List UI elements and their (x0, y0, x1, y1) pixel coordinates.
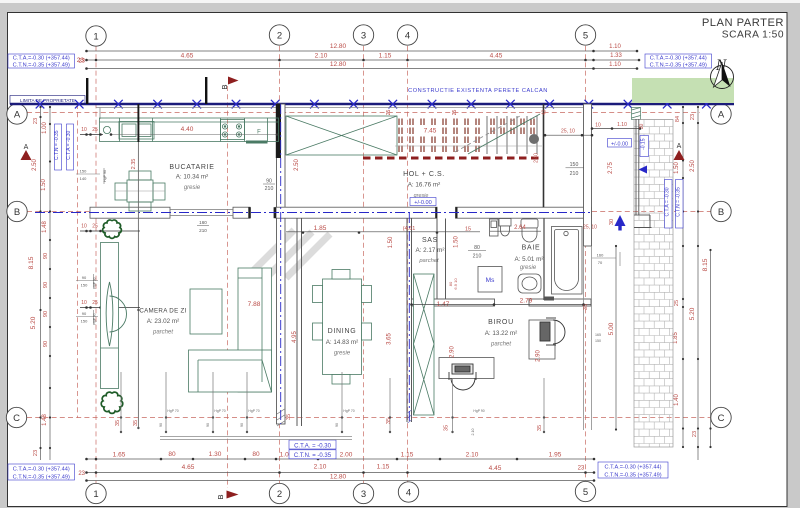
svg-text:80: 80 (474, 245, 480, 251)
svg-text:10: 10 (595, 123, 601, 129)
svg-text:B: B (216, 494, 225, 499)
svg-text:8.15: 8.15 (28, 256, 35, 269)
svg-text:A: 5.01 m²: A: 5.01 m² (514, 256, 543, 263)
svg-text:+/-0.00: +/-0.00 (414, 200, 432, 206)
svg-text:1: 1 (93, 31, 98, 42)
svg-text:A: 2.17 m²: A: 2.17 m² (415, 247, 444, 254)
svg-text:+/-0.00: +/-0.00 (611, 141, 628, 147)
svg-text:SCARA 1:50: SCARA 1:50 (722, 30, 784, 41)
svg-text:4.95: 4.95 (292, 331, 298, 343)
svg-text:HgP 70: HgP 70 (248, 409, 259, 413)
svg-text:90: 90 (43, 253, 49, 259)
svg-text:210: 210 (570, 171, 579, 177)
svg-text:80: 80 (168, 451, 176, 458)
svg-text:25: 25 (386, 110, 392, 116)
svg-text:2.64: 2.64 (514, 225, 526, 231)
svg-text:A: 16.76 m²: A: 16.76 m² (408, 182, 441, 189)
svg-text:35: 35 (537, 425, 543, 431)
svg-text:C.T.A.=-0.30 (+357.44): C.T.A.=-0.30 (+357.44) (650, 55, 707, 61)
svg-text:25: 25 (92, 300, 98, 306)
svg-text:1.30: 1.30 (209, 451, 222, 458)
svg-text:10: 10 (81, 127, 87, 133)
svg-text:90: 90 (335, 423, 339, 427)
svg-text:150: 150 (595, 339, 601, 343)
svg-text:90: 90 (43, 282, 49, 288)
svg-text:1.15: 1.15 (401, 452, 414, 459)
svg-text:2.50: 2.50 (32, 159, 38, 171)
svg-text:5: 5 (583, 30, 588, 41)
svg-text:210: 210 (473, 254, 482, 260)
svg-text:90: 90 (43, 311, 49, 317)
svg-text:1.50: 1.50 (674, 162, 680, 174)
svg-text:8.15: 8.15 (702, 258, 709, 271)
svg-text:C: C (718, 413, 725, 424)
svg-text:A: A (677, 143, 682, 150)
svg-text:A: 13.22 m²: A: 13.22 m² (485, 330, 518, 337)
svg-text:210: 210 (199, 228, 207, 233)
svg-text:7.45: 7.45 (424, 128, 437, 135)
svg-text:A: A (718, 109, 725, 120)
svg-text:B: B (718, 207, 724, 218)
svg-text:2.10: 2.10 (315, 53, 328, 60)
svg-text:5.20: 5.20 (689, 307, 696, 320)
svg-text:4: 4 (406, 487, 411, 498)
svg-text:2.79: 2.79 (520, 298, 533, 305)
svg-text:4.65: 4.65 (182, 464, 195, 471)
svg-text:A: 23.02 m²: A: 23.02 m² (147, 318, 180, 325)
svg-text:1.10: 1.10 (609, 62, 621, 68)
svg-text:1.15: 1.15 (379, 53, 392, 60)
svg-text:23: 23 (33, 450, 39, 456)
svg-text:1.65: 1.65 (113, 452, 126, 459)
svg-text:90: 90 (82, 311, 87, 316)
svg-text:80: 80 (448, 281, 453, 286)
svg-text:160: 160 (597, 253, 604, 258)
svg-text:C.T.N = -0.35: C.T.N = -0.35 (54, 130, 60, 160)
svg-text:90: 90 (240, 423, 244, 427)
svg-text:BAIE: BAIE (522, 245, 541, 252)
svg-text:2.75: 2.75 (608, 162, 614, 174)
svg-text:-0.15: -0.15 (640, 138, 646, 150)
svg-text:2.35: 2.35 (131, 159, 137, 170)
svg-text:1.00: 1.00 (42, 122, 48, 134)
svg-text:2.90: 2.90 (536, 350, 542, 362)
svg-text:C: C (13, 413, 20, 424)
svg-text:25, 10: 25, 10 (561, 129, 575, 135)
svg-text:C.T.A.=-0.30 (+357.44): C.T.A.=-0.30 (+357.44) (605, 464, 662, 470)
svg-text:C.T.A.=-0.30 (+357.44): C.T.A.=-0.30 (+357.44) (13, 466, 70, 472)
svg-text:90: 90 (266, 179, 272, 185)
svg-text:80: 80 (252, 451, 260, 458)
svg-text:HgP 70: HgP 70 (214, 409, 225, 413)
svg-text:150: 150 (81, 319, 88, 324)
svg-text:1.10: 1.10 (609, 44, 621, 50)
svg-text:5: 5 (583, 487, 588, 498)
svg-text:C.T.N. = -0.35: C.T.N. = -0.35 (294, 453, 332, 459)
svg-text:35: 35 (286, 414, 292, 420)
svg-text:23: 23 (77, 57, 85, 64)
svg-text:12.80: 12.80 (330, 61, 347, 68)
svg-text:25: 25 (92, 224, 98, 230)
svg-text:25: 25 (452, 110, 458, 116)
svg-text:12.80: 12.80 (330, 43, 347, 50)
svg-text:2.90: 2.90 (450, 346, 456, 358)
svg-text:5.20: 5.20 (30, 316, 37, 329)
svg-text:2: 2 (277, 30, 282, 41)
svg-text:1.95: 1.95 (549, 452, 562, 459)
svg-text:10: 10 (81, 300, 87, 306)
svg-text:1.48: 1.48 (42, 414, 48, 426)
svg-text:gresie: gresie (334, 351, 351, 357)
svg-text:SAS: SAS (422, 237, 438, 244)
svg-text:30: 30 (609, 219, 615, 225)
svg-text:A: A (24, 144, 29, 151)
svg-text:C.T.A.=-0.30 (+357.44): C.T.A.=-0.30 (+357.44) (13, 55, 70, 61)
svg-text:Ms: Ms (486, 277, 495, 284)
svg-text:1.85: 1.85 (673, 332, 679, 344)
svg-text:210: 210 (265, 186, 274, 192)
svg-text:1.15: 1.15 (377, 464, 390, 471)
svg-text:23: 23 (78, 471, 85, 477)
svg-text:HOL + C.S.: HOL + C.S. (403, 171, 445, 178)
svg-text:1.50: 1.50 (388, 236, 394, 248)
svg-text:35: 35 (386, 418, 392, 424)
svg-text:6.9 10: 6.9 10 (453, 278, 458, 290)
svg-text:1.40: 1.40 (674, 394, 680, 406)
svg-text:2.10: 2.10 (314, 464, 327, 471)
svg-text:2.10: 2.10 (466, 452, 479, 459)
svg-text:HgP 90: HgP 90 (93, 313, 97, 324)
svg-text:25: 25 (674, 300, 680, 306)
svg-text:23: 23 (33, 118, 39, 124)
svg-text:B: B (220, 84, 229, 89)
svg-text:4: 4 (405, 30, 410, 41)
svg-text:30: 30 (639, 124, 645, 130)
svg-text:1.50: 1.50 (454, 236, 460, 248)
svg-text:PLAN PARTER: PLAN PARTER (702, 17, 784, 29)
svg-text:35: 35 (444, 425, 450, 431)
svg-text:35: 35 (133, 420, 139, 426)
svg-text:C.T.A = -0.30: C.T.A = -0.30 (66, 130, 72, 159)
svg-text:C.T.N.=-0.35 (+357.49): C.T.N.=-0.35 (+357.49) (13, 62, 70, 68)
svg-text:150: 150 (81, 283, 88, 288)
svg-text:2: 2 (277, 489, 282, 500)
svg-text:160: 160 (199, 220, 207, 225)
svg-text:2.10: 2.10 (471, 429, 475, 436)
svg-text:25, 10: 25, 10 (583, 225, 597, 231)
svg-text:1.48: 1.48 (42, 221, 48, 233)
svg-text:10: 10 (81, 224, 87, 230)
svg-text:25: 25 (92, 127, 98, 133)
svg-text:gresie: gresie (520, 265, 537, 271)
svg-text:HgP 90: HgP 90 (103, 170, 107, 182)
svg-text:1.33: 1.33 (610, 53, 622, 59)
svg-text:(4.61: (4.61 (403, 226, 416, 232)
svg-text:C.T.A = -0.30: C.T.A = -0.30 (664, 187, 670, 216)
svg-text:12.80: 12.80 (330, 474, 347, 481)
svg-text:BIROU: BIROU (488, 319, 514, 326)
svg-text:23: 23 (690, 114, 696, 120)
svg-text:35: 35 (583, 304, 589, 310)
svg-text:1.85: 1.85 (314, 225, 327, 232)
svg-text:B: B (14, 207, 20, 218)
svg-text:15: 15 (465, 227, 471, 233)
svg-text:35: 35 (115, 420, 121, 426)
svg-text:HgP 70: HgP 70 (343, 409, 354, 413)
svg-text:HgP 90: HgP 90 (93, 277, 97, 288)
svg-text:90: 90 (43, 341, 49, 347)
svg-text:3: 3 (361, 489, 366, 500)
svg-text:1: 1 (93, 489, 98, 500)
svg-text:CONSTRUCTIE EXISTENTA PERETE C: CONSTRUCTIE EXISTENTA PERETE CALCAN (408, 88, 548, 94)
svg-text:3: 3 (361, 30, 366, 41)
svg-text:parchet: parchet (490, 342, 511, 348)
svg-text:DINING: DINING (328, 328, 357, 335)
svg-text:C.T.N.=-0.35 (+357.49): C.T.N.=-0.35 (+357.49) (13, 474, 70, 480)
svg-text:140: 140 (80, 176, 87, 181)
svg-text:BUCATARIE: BUCATARIE (169, 164, 214, 171)
svg-text:90: 90 (206, 423, 210, 427)
svg-text:70: 70 (598, 260, 603, 265)
svg-text:84: 84 (675, 116, 681, 122)
svg-text:C.T.N.=-0.35 (+357.49): C.T.N.=-0.35 (+357.49) (650, 62, 707, 68)
svg-text:2.40: 2.40 (534, 153, 540, 163)
svg-text:parchet: parchet (418, 258, 439, 264)
svg-text:4.40: 4.40 (181, 126, 194, 133)
svg-text:CAMERA DE ZI: CAMERA DE ZI (139, 308, 186, 315)
svg-text:LIMITA DE PROPRIETATE: LIMITA DE PROPRIETATE (20, 98, 75, 103)
svg-text:A: 14.83 m²: A: 14.83 m² (326, 339, 359, 346)
svg-text:7.88: 7.88 (248, 301, 261, 308)
svg-text:HgP 70: HgP 70 (167, 409, 178, 413)
svg-text:A: 10.34 m²: A: 10.34 m² (176, 174, 209, 181)
svg-text:23: 23 (578, 466, 585, 472)
svg-text:C.T.N.=-0.35 (+357.49): C.T.N.=-0.35 (+357.49) (604, 472, 661, 478)
svg-text:parchet: parchet (152, 330, 173, 336)
svg-text:4.45: 4.45 (490, 53, 503, 60)
svg-text:HgP 90: HgP 90 (473, 409, 484, 413)
svg-text:90: 90 (159, 423, 163, 427)
svg-text:90: 90 (82, 275, 87, 280)
svg-text:2.50: 2.50 (294, 159, 300, 171)
svg-text:4.45: 4.45 (489, 465, 502, 472)
svg-text:150: 150 (570, 162, 579, 168)
svg-text:A: A (14, 109, 21, 120)
svg-text:1.50: 1.50 (41, 179, 47, 191)
svg-text:C.T.A. = -0.30: C.T.A. = -0.30 (294, 443, 332, 449)
svg-text:40: 40 (542, 110, 548, 116)
svg-text:4.65: 4.65 (181, 53, 194, 60)
svg-text:23: 23 (692, 431, 698, 437)
svg-text:5.00: 5.00 (608, 322, 615, 335)
svg-text:gresie: gresie (184, 185, 201, 191)
svg-text:150: 150 (80, 169, 87, 174)
svg-text:2.50: 2.50 (690, 160, 696, 172)
svg-text:1.10: 1.10 (617, 122, 627, 128)
svg-text:2.00: 2.00 (340, 452, 353, 459)
svg-text:3.65: 3.65 (387, 333, 393, 345)
svg-text:C.T.N = -0.35: C.T.N = -0.35 (675, 187, 681, 217)
svg-text:165: 165 (595, 333, 601, 337)
